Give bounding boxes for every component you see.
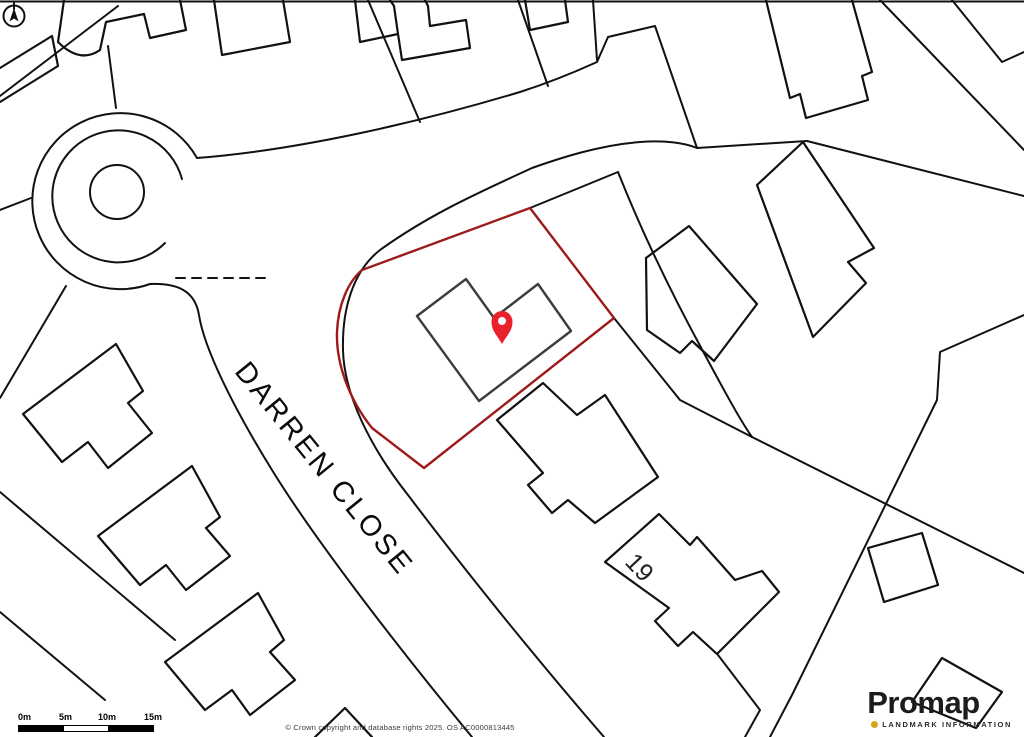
scale-bar: 0m 5m 10m 15m <box>18 712 168 732</box>
selected-plot-boundary[interactable] <box>337 208 614 468</box>
scale-label-15m: 15m <box>144 712 162 722</box>
promap-map-view[interactable]: DARREN CLOSE 19 0m 5m 10m 15m © Crown co… <box>0 0 1024 737</box>
road-lines <box>0 2 1024 737</box>
scale-bar-track <box>18 725 154 732</box>
copyright-attribution: © Crown copyright and database rights 20… <box>275 723 525 732</box>
promap-tagline: LANDMARK INFORMATION <box>882 720 1012 729</box>
scale-label-0m: 0m <box>18 712 31 722</box>
promap-logo: Promap LANDMARK INFORMATION <box>867 687 1012 729</box>
brand-dot-icon <box>871 721 878 728</box>
subject-building-outline <box>417 279 571 401</box>
building-outlines <box>0 0 1002 737</box>
map-canvas[interactable] <box>0 0 1024 737</box>
scale-label-10m: 10m <box>98 712 116 722</box>
promap-tagline-row: LANDMARK INFORMATION <box>871 720 1012 729</box>
scale-segment <box>19 726 64 731</box>
scale-segment <box>64 726 109 731</box>
scale-label-5m: 5m <box>59 712 72 722</box>
scale-segment <box>108 726 153 731</box>
promap-logo-text: Promap <box>867 687 1012 718</box>
scale-bar-labels: 0m 5m 10m 15m <box>18 712 168 723</box>
north-arrow-icon <box>4 3 25 27</box>
location-pin-icon[interactable] <box>492 311 513 344</box>
